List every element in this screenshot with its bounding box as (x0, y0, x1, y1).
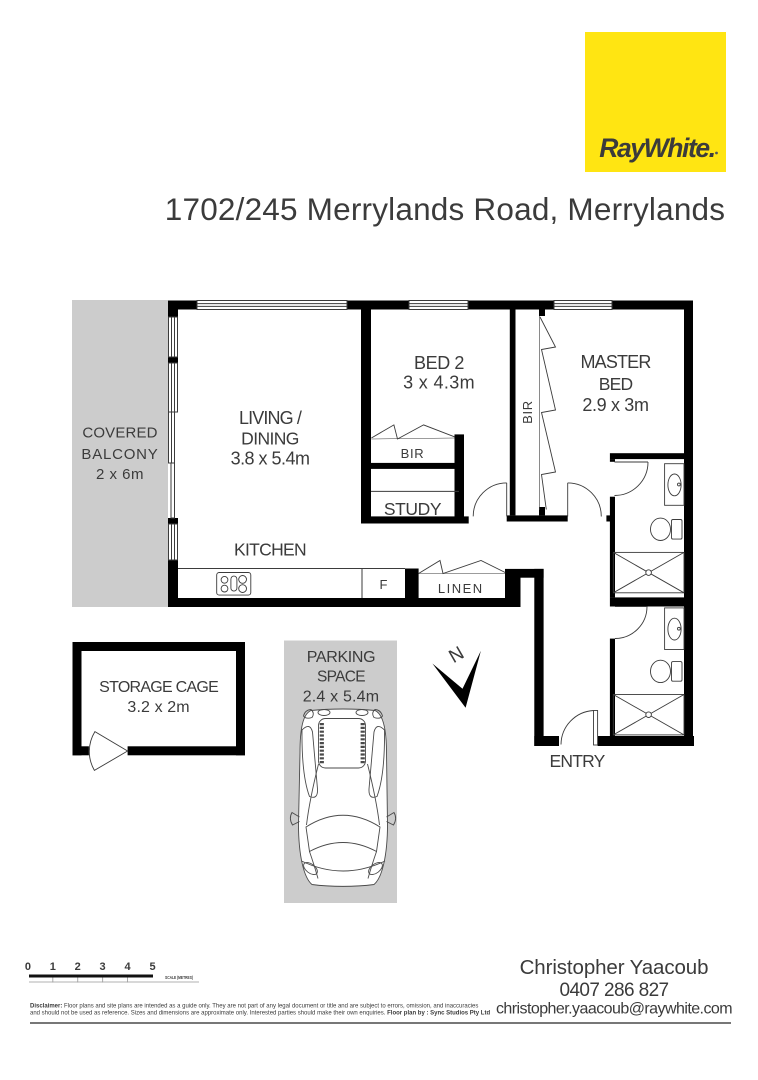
svg-text:christopher.yaacoub@raywhite.c: christopher.yaacoub@raywhite.com (496, 1001, 732, 1018)
svg-text:1702/245 Merrylands Road, Merr: 1702/245 Merrylands Road, Merrylands (165, 191, 725, 227)
svg-text:BED: BED (599, 374, 633, 394)
svg-text:SPACE: SPACE (317, 669, 365, 686)
svg-text:BIR: BIR (401, 446, 425, 461)
svg-text:SCALE (METRES): SCALE (METRES) (165, 975, 193, 980)
svg-text:1: 1 (50, 961, 56, 973)
svg-text:STUDY: STUDY (384, 499, 442, 519)
svg-text:PARKING: PARKING (307, 649, 375, 666)
svg-text:F: F (380, 577, 388, 592)
svg-text:3 x 4.3m: 3 x 4.3m (403, 372, 475, 392)
svg-text:0407 286 827: 0407 286 827 (559, 980, 668, 1001)
svg-text:KITCHEN: KITCHEN (234, 539, 306, 559)
svg-text:4: 4 (124, 961, 131, 973)
svg-text:BALCONY: BALCONY (81, 446, 158, 463)
svg-text:DINING: DINING (241, 428, 299, 448)
svg-text:STORAGE CAGE: STORAGE CAGE (99, 679, 218, 696)
svg-text:RayWhite.: RayWhite. (599, 133, 715, 163)
svg-text:2 x 6m: 2 x 6m (96, 466, 144, 483)
svg-text:2.9 x 3m: 2.9 x 3m (582, 395, 648, 415)
svg-text:2.4 x 5.4m: 2.4 x 5.4m (303, 689, 380, 706)
svg-text:BIR: BIR (520, 400, 535, 424)
svg-text:BED 2: BED 2 (414, 353, 464, 373)
svg-text:and should not be used as refe: and should not be used as reference. Siz… (30, 1011, 490, 1017)
svg-text:MASTER: MASTER (581, 352, 652, 372)
svg-text:Disclaimer: Floor plans and si: Disclaimer: Floor plans and site plans a… (30, 1004, 478, 1010)
svg-text:LINEN: LINEN (438, 581, 484, 596)
svg-text:0: 0 (25, 961, 31, 973)
svg-text:3.2 x 2m: 3.2 x 2m (127, 699, 189, 716)
svg-text:3: 3 (100, 961, 106, 973)
svg-text:2: 2 (75, 961, 81, 973)
svg-text:ENTRY: ENTRY (550, 751, 606, 771)
svg-text:5: 5 (149, 961, 155, 973)
svg-text:COVERED: COVERED (82, 425, 157, 442)
svg-text:3.8 x 5.4m: 3.8 x 5.4m (231, 449, 310, 469)
svg-text:N: N (446, 643, 468, 668)
svg-text:Christopher Yaacoub: Christopher Yaacoub (520, 956, 709, 979)
svg-text:LIVING /: LIVING / (239, 408, 302, 428)
